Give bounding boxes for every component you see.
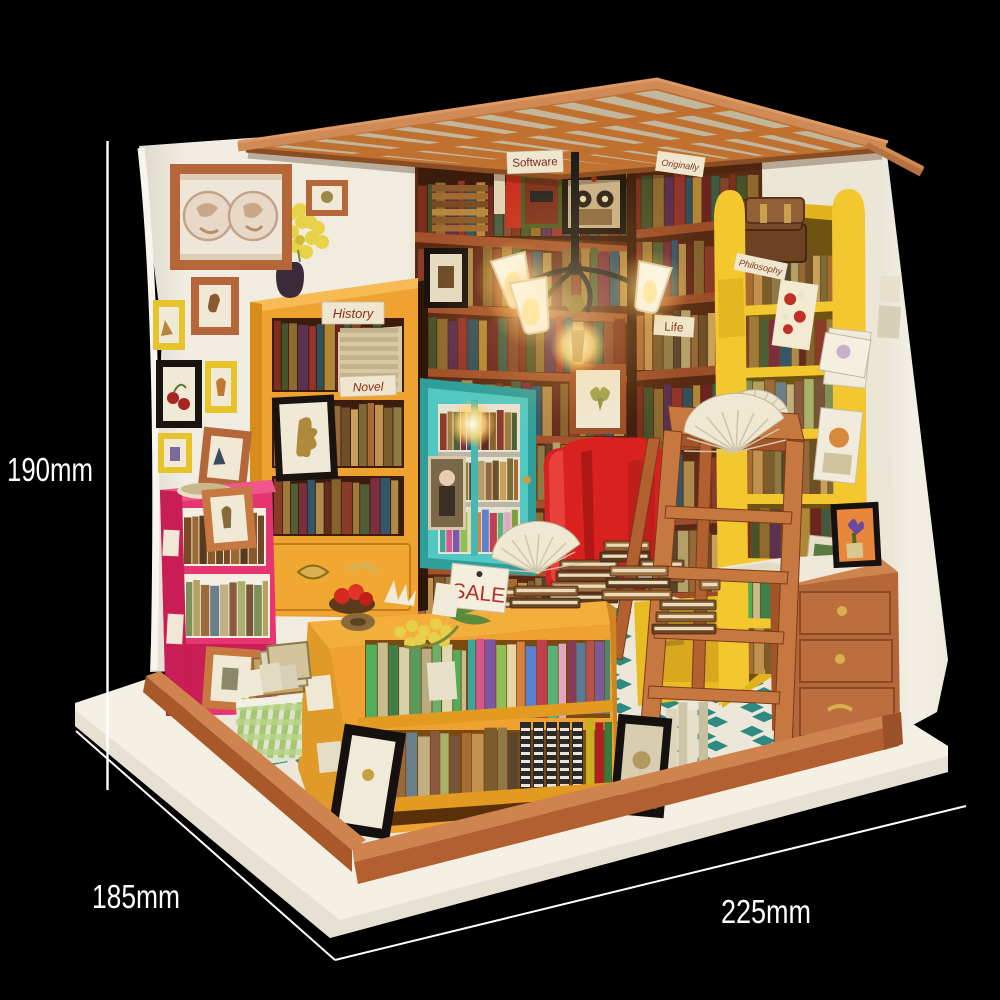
svg-text:185mm: 185mm: [92, 878, 180, 915]
svg-text:History: History: [333, 306, 375, 321]
svg-text:225mm: 225mm: [721, 893, 811, 930]
svg-text:Novel: Novel: [352, 379, 383, 394]
svg-text:190mm: 190mm: [7, 451, 93, 488]
